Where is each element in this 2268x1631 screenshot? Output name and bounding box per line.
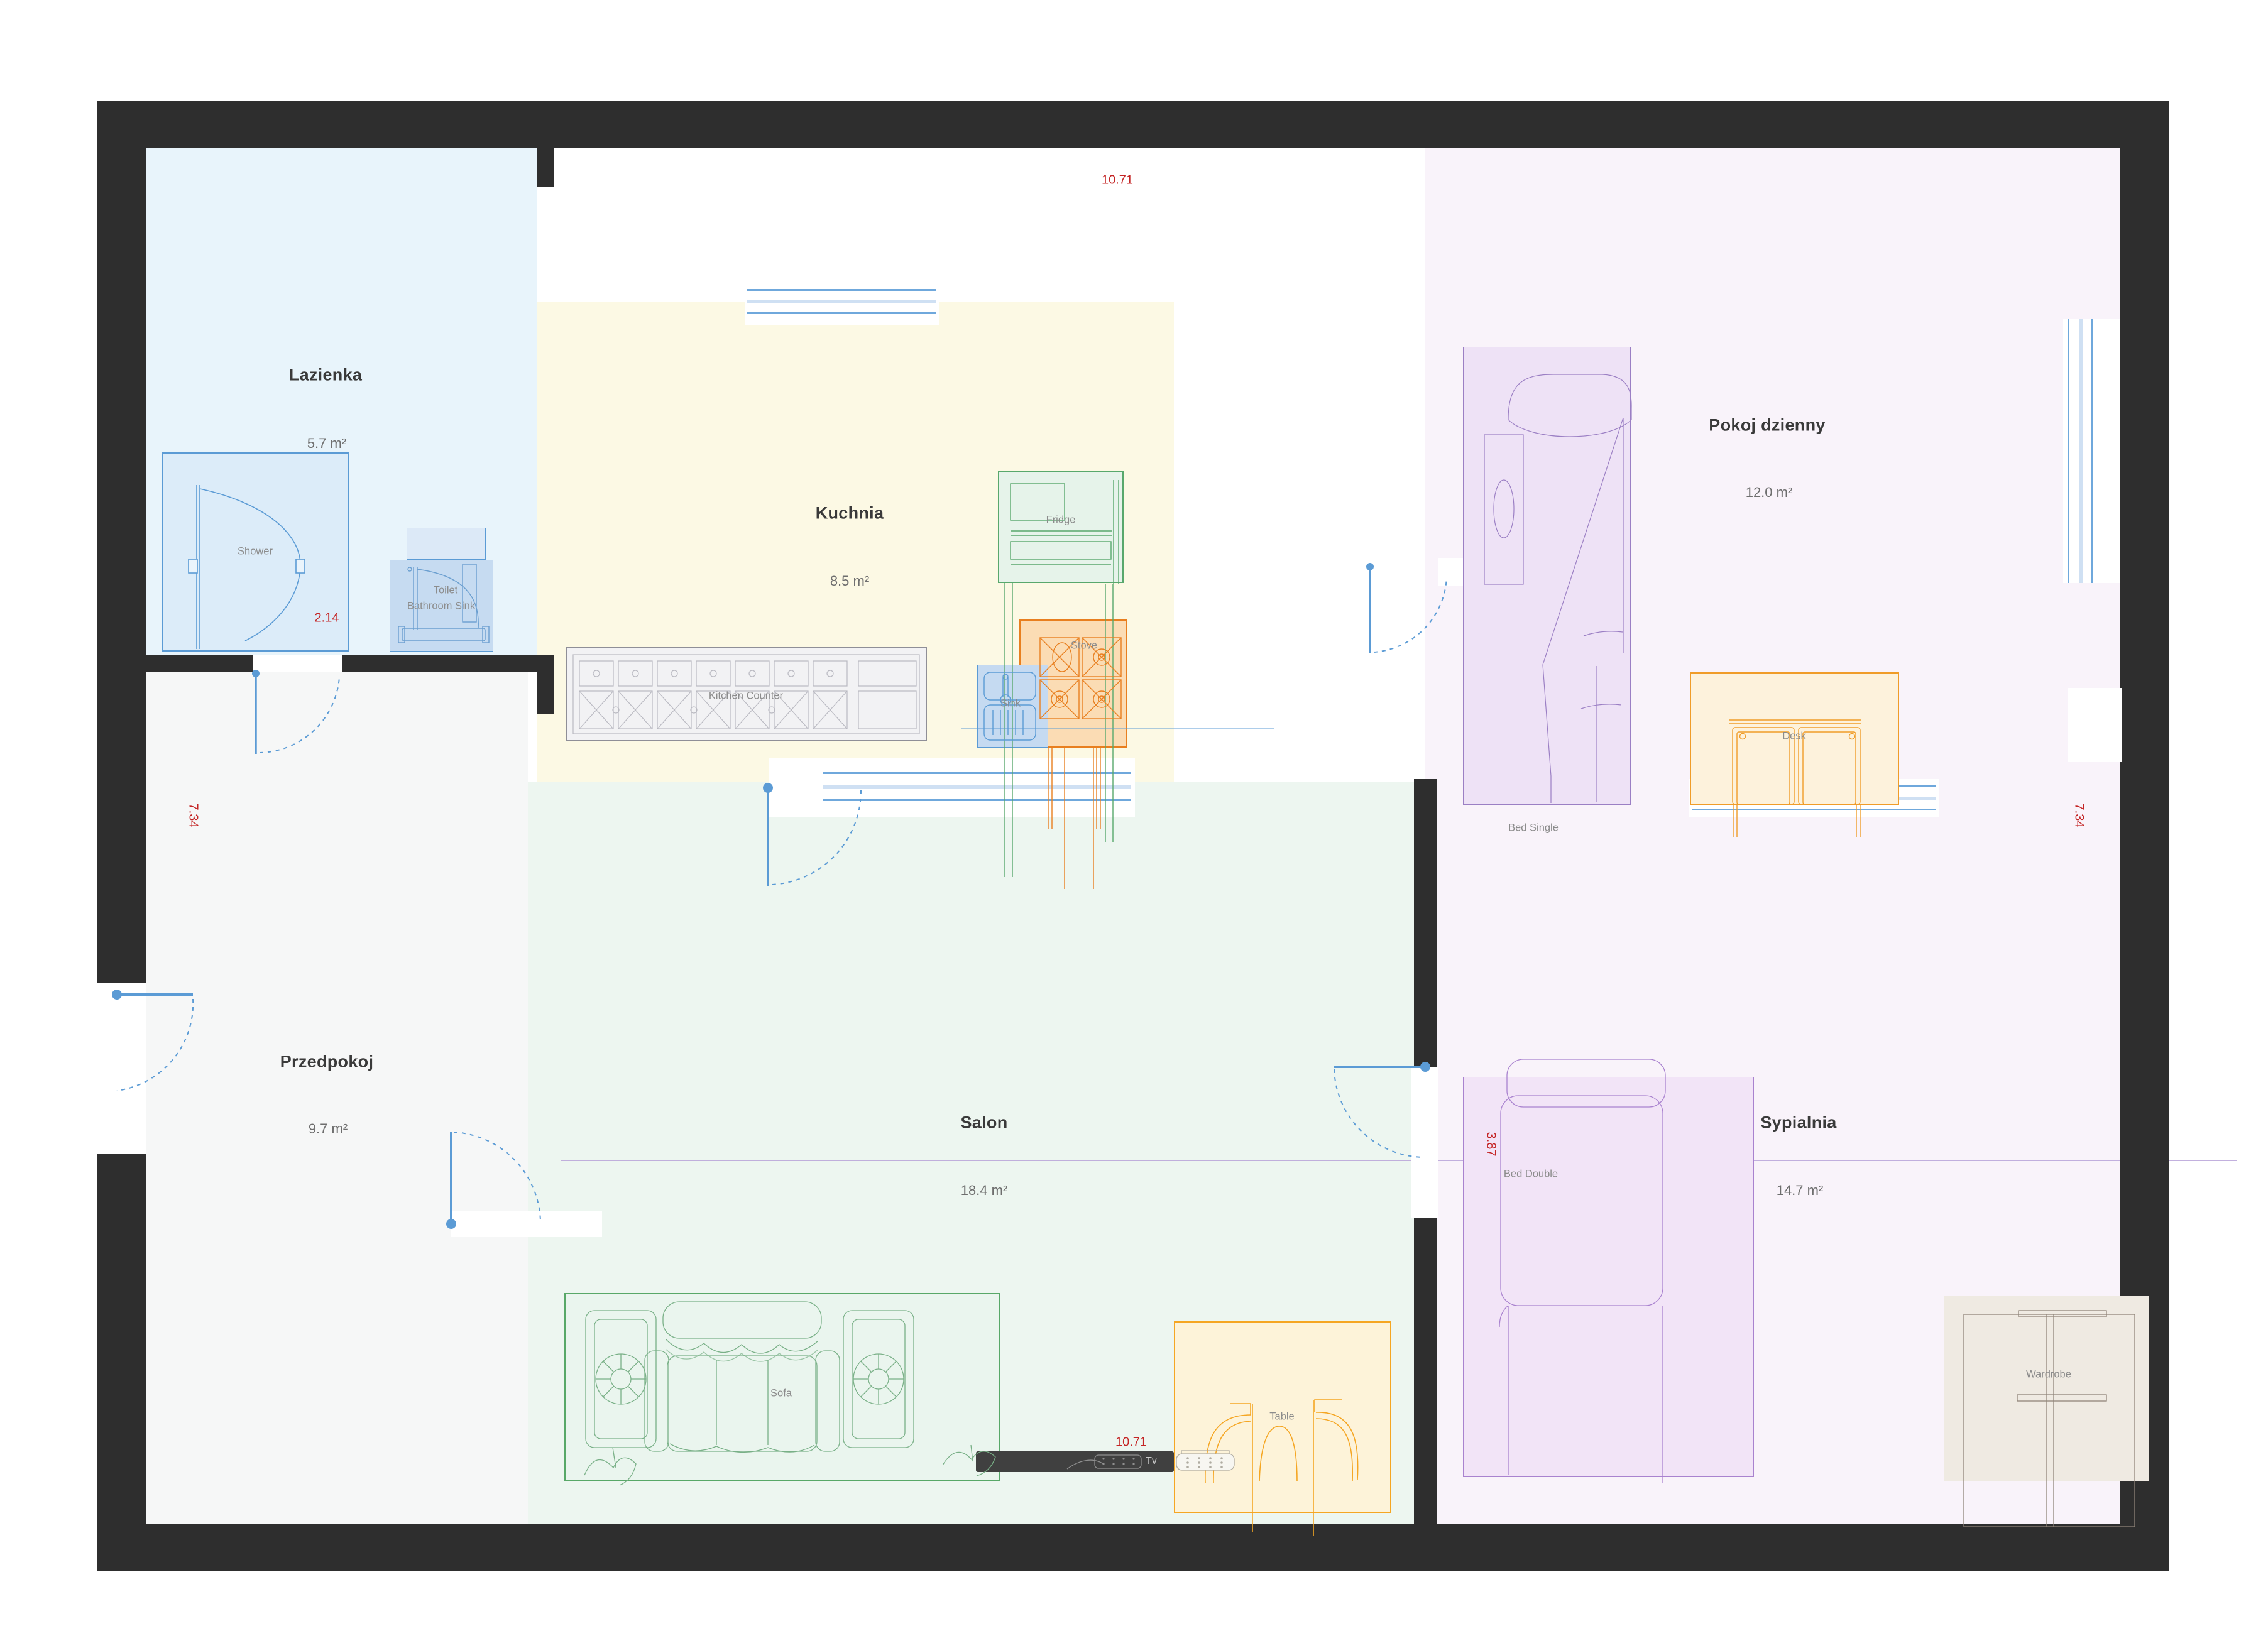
label-bathroom-sink: Bathroom Sink (407, 601, 475, 613)
door-hinge-icon (252, 670, 260, 677)
door-hinge-icon (446, 1219, 456, 1229)
label-fridge: Fridge (1046, 515, 1076, 526)
fridge-sketch (1004, 480, 1119, 877)
door-hinge-icon (1420, 1062, 1430, 1072)
room-label-kuchnia: Kuchnia (816, 504, 884, 523)
dimension-sypialnia: 3.87 (1484, 1132, 1498, 1157)
label-tv: Tv (1146, 1456, 1157, 1467)
label-shower: Shower (238, 546, 273, 558)
wardrobe-sketch (1964, 1311, 2135, 1527)
stove-sketch (1040, 638, 1121, 889)
door-pokoj-dzienny[interactable] (1366, 563, 1447, 653)
door-kuchnia-salon[interactable] (763, 783, 861, 886)
door-hinge-icon (1366, 563, 1374, 570)
room-area-lazienka: 5.7 m² (307, 435, 346, 452)
label-stove: Stove (1071, 640, 1097, 652)
label-bed-double: Bed Double (1504, 1169, 1558, 1181)
door-entry[interactable] (112, 990, 193, 1091)
label-bed-single: Bed Single (1508, 822, 1559, 834)
label-kitchen-counter: Kitchen Counter (709, 690, 783, 702)
label-table: Table (1269, 1411, 1294, 1423)
room-label-lazienka: Lazienka (289, 366, 362, 385)
door-lazienka[interactable] (252, 670, 339, 754)
door-salon-sypialnia[interactable] (1334, 1062, 1430, 1157)
label-toilet: Toilet (434, 585, 458, 597)
floor-plan: Lazienka 5.7 m² Kuchnia 8.5 m² Pokoj dzi… (0, 0, 2268, 1631)
bed-single-sketch (1484, 374, 1631, 803)
door-hinge-icon (763, 783, 773, 793)
door-przedpokoj-salon[interactable] (446, 1132, 540, 1229)
room-label-salon: Salon (960, 1113, 1007, 1133)
label-sofa: Sofa (770, 1388, 792, 1400)
sketch-overlay (0, 0, 2268, 1631)
room-label-przedpokoj: Przedpokoj (280, 1052, 374, 1072)
room-area-pokoj-dzienny: 12.0 m² (1746, 484, 1793, 501)
dimension-top: 10.71 (1102, 173, 1133, 188)
room-area-salon: 18.4 m² (961, 1182, 1008, 1199)
room-area-kuchnia: 8.5 m² (830, 573, 869, 589)
shower-sketch (189, 485, 305, 649)
dimension-left: 7.34 (186, 804, 200, 828)
room-label-sypialnia: Sypialnia (1760, 1113, 1836, 1133)
room-area-sypialnia: 14.7 m² (1777, 1182, 1824, 1199)
bed-double-sketch (1499, 1059, 1665, 1483)
dimension-right: 7.34 (2072, 804, 2086, 828)
label-wardrobe: Wardrobe (2026, 1369, 2071, 1381)
room-area-przedpokoj: 9.7 m² (309, 1121, 348, 1137)
label-desk: Desk (1782, 731, 1806, 743)
label-sink: Sink (1000, 698, 1021, 710)
room-label-pokoj-dzienny: Pokoj dzienny (1709, 416, 1825, 435)
dimension-shower: 2.14 (315, 611, 339, 626)
door-hinge-icon (112, 990, 122, 1000)
dimension-bottom: 10.71 (1115, 1436, 1147, 1450)
